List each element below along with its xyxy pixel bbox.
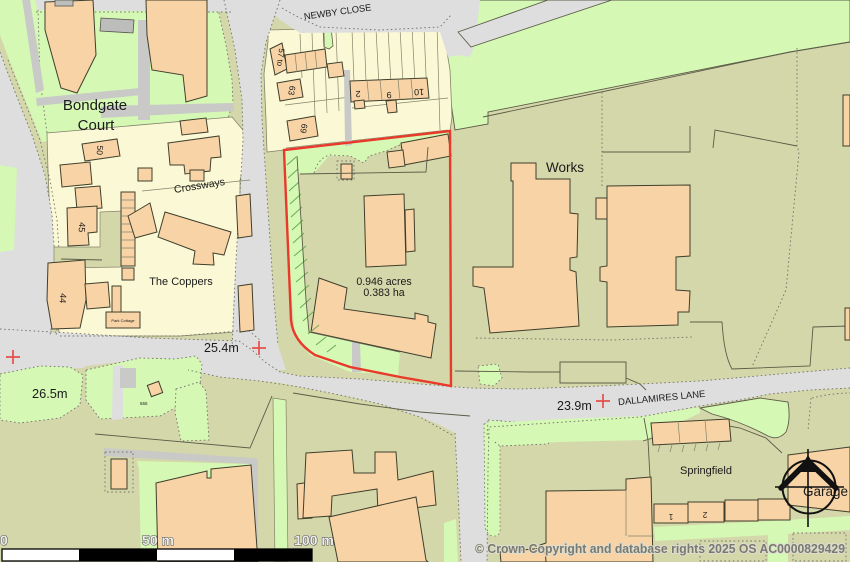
svg-text:0.383 ha: 0.383 ha bbox=[363, 287, 404, 299]
svg-text:45: 45 bbox=[77, 222, 88, 233]
svg-text:655: 655 bbox=[140, 401, 148, 406]
svg-text:9: 9 bbox=[386, 90, 391, 100]
svg-text:26.5m: 26.5m bbox=[32, 386, 68, 401]
svg-text:25.4m: 25.4m bbox=[204, 341, 239, 355]
svg-text:2: 2 bbox=[355, 89, 360, 99]
svg-text:69: 69 bbox=[298, 123, 310, 134]
svg-text:0: 0 bbox=[0, 532, 8, 548]
svg-text:© Crown Copyright and database: © Crown Copyright and database rights 20… bbox=[475, 541, 845, 556]
svg-text:Park Cottage: Park Cottage bbox=[111, 318, 135, 323]
svg-text:10: 10 bbox=[414, 87, 424, 97]
svg-text:23.9m: 23.9m bbox=[557, 399, 592, 413]
svg-text:Works: Works bbox=[546, 160, 584, 175]
svg-text:44: 44 bbox=[58, 293, 69, 304]
svg-text:The Coppers: The Coppers bbox=[149, 276, 213, 288]
svg-text:Bondgate: Bondgate bbox=[63, 97, 127, 114]
svg-text:Springfield: Springfield bbox=[680, 465, 732, 477]
svg-text:50: 50 bbox=[95, 145, 106, 156]
svg-text:100 m: 100 m bbox=[294, 532, 334, 548]
svg-text:50 m: 50 m bbox=[142, 532, 174, 548]
svg-text:63: 63 bbox=[286, 85, 298, 96]
svg-text:2: 2 bbox=[702, 510, 707, 519]
svg-text:1: 1 bbox=[668, 512, 673, 521]
svg-text:Court: Court bbox=[78, 117, 116, 134]
